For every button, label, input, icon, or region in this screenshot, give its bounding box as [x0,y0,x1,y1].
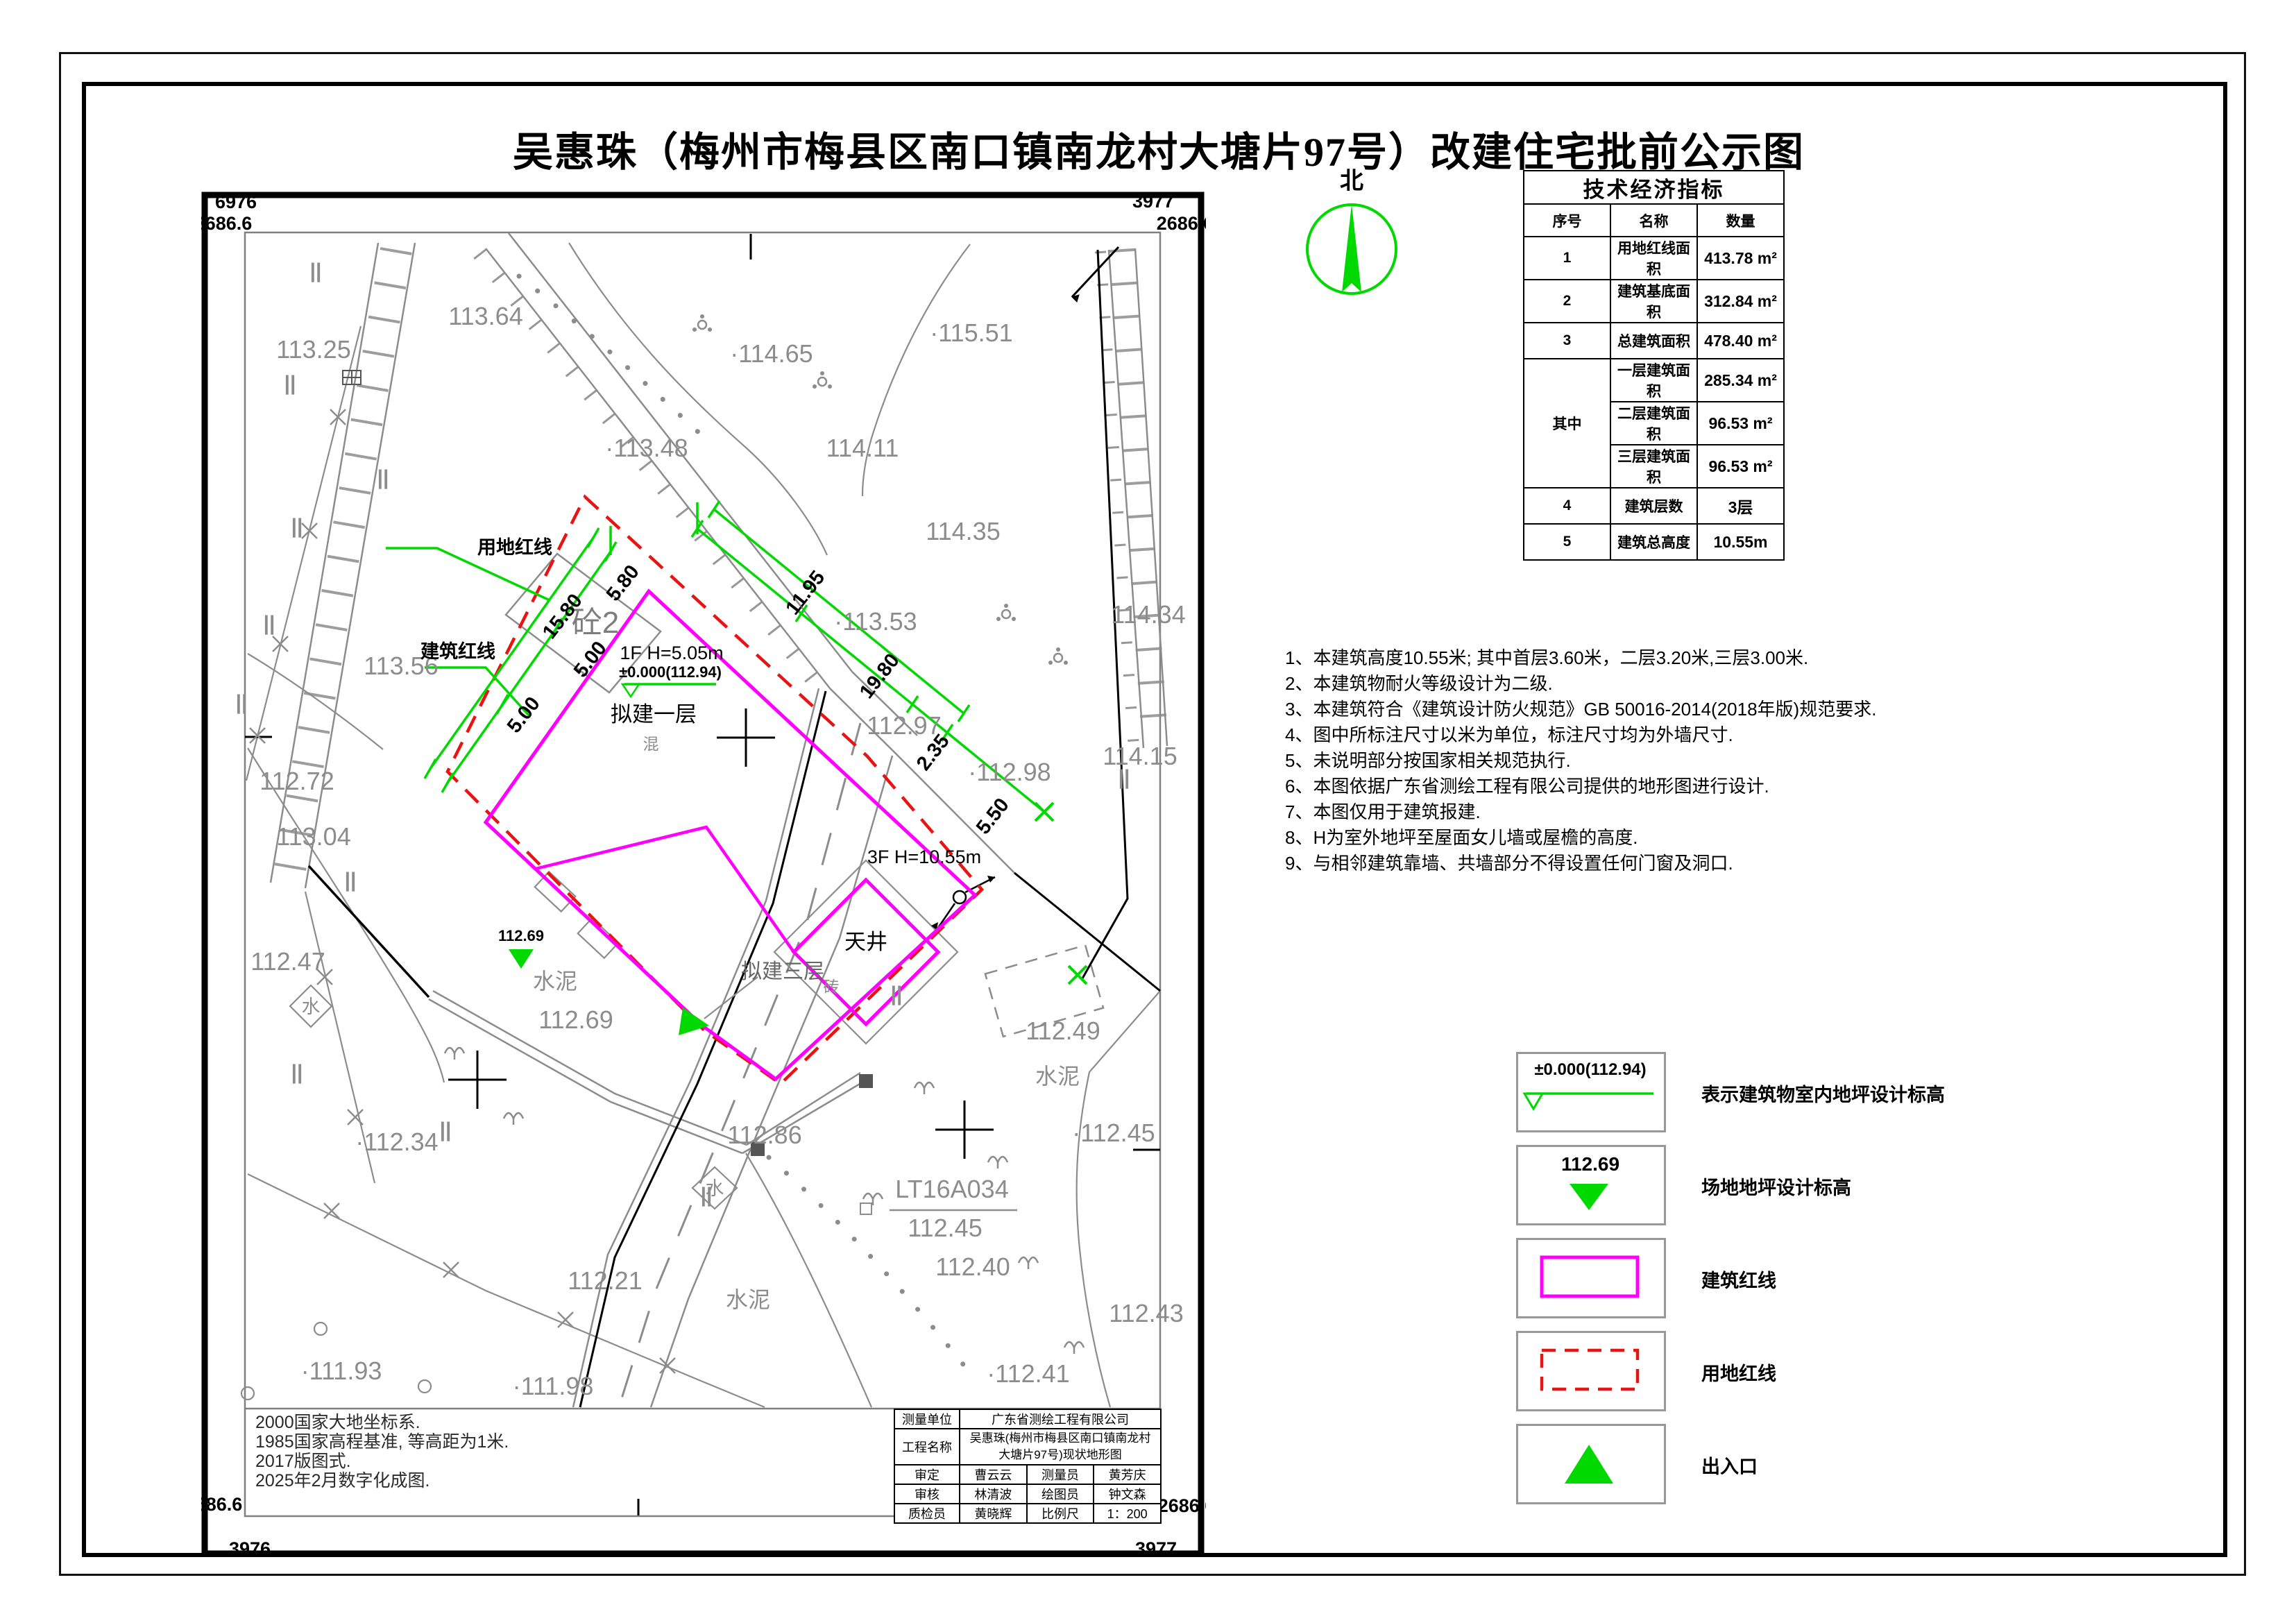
table-row: 2 建筑基底面积 312.84 m² [1524,280,1784,323]
legend-site-elevation-value: 112.69 [1524,1153,1656,1175]
site-plan-map: |||||| |||||| |||||| |||||| 69762686.639… [201,191,1206,1560]
entrance-triangle-icon [1565,1445,1613,1484]
map-label: 砖 [824,978,840,996]
map-label: ·113.53 [834,607,917,636]
map-label: 3976 [229,1538,271,1559]
svg-text:||: || [440,1119,452,1141]
map-label: 19.80 [856,649,904,703]
map-label: 3977 [1135,1538,1177,1559]
map-label: 114.35 [926,517,1000,545]
map-label: 112.21 [568,1266,642,1295]
map-label: 112.49 [1026,1017,1100,1045]
project-name-value: 吴惠珠(梅州市梅县区南口镇南龙村 大塘片97号)现状地形图 [960,1429,1161,1465]
map-label: ·113.48 [605,434,688,462]
map-label: ·112.34 [355,1128,438,1156]
title-block-row: 审核 林清波 绘图员 钟文森 [894,1484,1161,1504]
note-1: 1、本建筑高度10.55米; 其中首层3.60米，二层3.20米,三层3.00米… [1285,645,1882,671]
title-block: 测量单位 广东省测绘工程有限公司 工程名称 吴惠珠(梅州市梅县区南口镇南龙村 大… [894,1409,1162,1524]
note-2: 2、本建筑物耐火等级设计为二级. [1285,671,1882,697]
table-row: 4 建筑层数 3层 [1524,488,1784,524]
map-label: 5.80 [602,561,644,605]
map-label: 5.00 [570,637,611,681]
map-label: 114.34 [1111,600,1185,629]
map-label: 建筑红线 [420,640,495,662]
map-label: 水泥 [1035,1064,1080,1089]
terrain-lines [241,233,1167,1407]
col-header-qty: 数量 [1697,204,1784,237]
indicators-title: 技术经济指标 [1524,171,1784,204]
map-label: 112.72 [260,767,334,795]
map-label: 水 [302,996,321,1017]
table-row: 3 总建筑面积 478.40 m² [1524,323,1784,359]
svg-text:||: || [891,983,903,1005]
map-label: ·111.98 [513,1372,594,1400]
map-label: 5.50 [972,794,1014,838]
map-label: 2686.6 [201,213,252,234]
map-label: 112.47 [250,947,325,976]
map-label: 3F H=10.55m [867,847,981,867]
legend-label-site-elevation: 场地地坪设计标高 [1701,1173,2132,1200]
map-label: 2686.6 [201,1494,242,1515]
map-label: 112.40 [935,1252,1010,1281]
map-label: 1F H=5.05m [620,643,723,663]
map-label: 水泥 [533,969,577,994]
note-3: 3、本建筑符合《建筑设计防火规范》GB 50016-2014(2018年版)规范… [1285,697,1882,722]
public-notice-drawing-sheet: { "title": "吴惠珠（梅州市梅县区南口镇南龙村大塘片97号）改建住宅批… [0,0,2296,1623]
map-label: 2017版图式. [255,1452,351,1471]
map-label: ·111.93 [301,1357,382,1385]
svg-text:||: || [264,612,275,635]
map-label: ·112.98 [968,758,1051,786]
note-8: 8、H为室外地坪至屋面女儿墙或屋檐的高度. [1285,825,1882,851]
map-label: 113.64 [448,302,522,330]
map-label: 112.69 [538,1005,613,1034]
map-label: 混 [643,735,659,753]
title-block-row: 质检员 黄晓辉 比例尺 1：200 [894,1504,1161,1523]
table-row: 1 用地红线面积 413.78 m² [1524,237,1784,280]
legend-indoor-elevation-value: ±0.000(112.94) [1524,1060,1656,1080]
building-red-line-icon [1542,1257,1638,1296]
map-label: ±0.000(112.94) [619,663,722,681]
note-9: 9、与相邻建筑靠墙、共墙部分不得设置任何门窗及洞口. [1285,851,1882,876]
table-row: 其中 一层建筑面积 285.34 m² [1524,359,1784,402]
note-6: 6、本图依据广东省测绘工程有限公司提供的地形图进行设计. [1285,774,1882,799]
map-label: 5.00 [503,692,545,737]
map-label: 112.97 [867,711,941,740]
grid-marks [245,234,1160,1515]
legend-label-entrance: 出入口 [1701,1452,2132,1479]
legend-label-building-red-line: 建筑红线 [1701,1266,2132,1293]
legend-symbols [1516,1052,1666,1503]
map-label: ·115.51 [930,318,1012,347]
col-header-name: 名称 [1610,204,1697,237]
map-label: ·114.65 [730,339,813,368]
map-label: 2025年2月数字化成图. [255,1471,430,1490]
map-label: ·112.45 [1072,1119,1155,1147]
land-red-line-icon [1542,1350,1638,1389]
note-7: 7、本图仅用于建筑报建. [1285,799,1882,825]
map-label: 水 [706,1178,724,1199]
survey-unit-value: 广东省测绘工程有限公司 [960,1409,1161,1429]
map-label: 113.04 [276,822,350,851]
site-elevation-triangle-icon [1570,1184,1608,1210]
map-label: LT16A034 [895,1175,1008,1203]
legend-label-land-red-line: 用地红线 [1701,1359,2132,1386]
map-label: 2000国家大地坐标系. [255,1413,420,1432]
rowspan-qizhong: 其中 [1524,359,1610,488]
map-label: 水泥 [726,1287,770,1312]
table-row: 5 建筑总高度 10.55m [1524,524,1784,560]
map-label: ·112.41 [987,1359,1069,1388]
project-name-label: 工程名称 [894,1429,960,1465]
north-label: 北 [1340,168,1363,194]
map-label: 拟建三层 [741,960,824,983]
col-header-no: 序号 [1524,204,1610,237]
map-label: 用地红线 [477,536,552,558]
walls [309,247,1160,1407]
svg-text:||: || [291,515,303,538]
page-title: 吴惠珠（梅州市梅县区南口镇南龙村大塘片97号）改建住宅批前公示图 [333,119,1984,178]
svg-text:||: || [310,260,322,282]
north-needle [1342,204,1361,292]
project-name-line2: 大塘片97号)现状地形图 [960,1447,1160,1463]
map-label: 6976 [215,192,257,212]
map-label: 112.43 [1109,1299,1183,1327]
map-label: 1985国家高程基准, 等高距为1米. [255,1432,509,1452]
svg-text:||: || [345,869,357,892]
map-label: 2686.6 [1158,1495,1206,1516]
legend-label-indoor-elevation: 表示建筑物室内地坪设计标高 [1701,1080,2132,1107]
project-name-line1: 吴惠珠(梅州市梅县区南口镇南龙村 [960,1430,1160,1447]
entrance-marker [679,1008,709,1035]
map-label: 114.11 [826,434,899,462]
title-block-row: 审定 曹云云 测量员 黄芳庆 [894,1465,1161,1484]
indicators-table: 技术经济指标 序号 名称 数量 1 用地红线面积 413.78 m² 2 建筑基… [1523,170,1785,561]
indoor-elevation-triangle-icon [1524,1094,1542,1109]
note-4: 4、图中所标注尺寸以米为单位，标注尺寸均为外墙尺寸. [1285,722,1882,748]
map-label: 3977 [1132,191,1174,212]
svg-text:||: || [236,691,248,714]
north-arrow: 北 [1296,158,1407,311]
map-label: 112.69 [498,927,544,944]
map-label: 112.86 [727,1121,801,1149]
map-label: 112.45 [908,1214,982,1242]
map-label: 113.25 [276,335,350,364]
general-notes: 1、本建筑高度10.55米; 其中首层3.60米，二层3.20米,三层3.00米… [1285,645,1882,876]
note-5: 5、未说明部分按国家相关规范执行. [1285,748,1882,774]
svg-text:||: || [291,1061,303,1084]
map-label: 拟建一层 [611,702,697,726]
map-label: 天井 [844,930,887,954]
map-label: 114.15 [1103,742,1177,770]
svg-text:||: || [284,372,296,395]
map-label: 2686.6 [1157,213,1206,234]
survey-unit-label: 测量单位 [894,1409,960,1429]
svg-text:||: || [377,466,389,489]
